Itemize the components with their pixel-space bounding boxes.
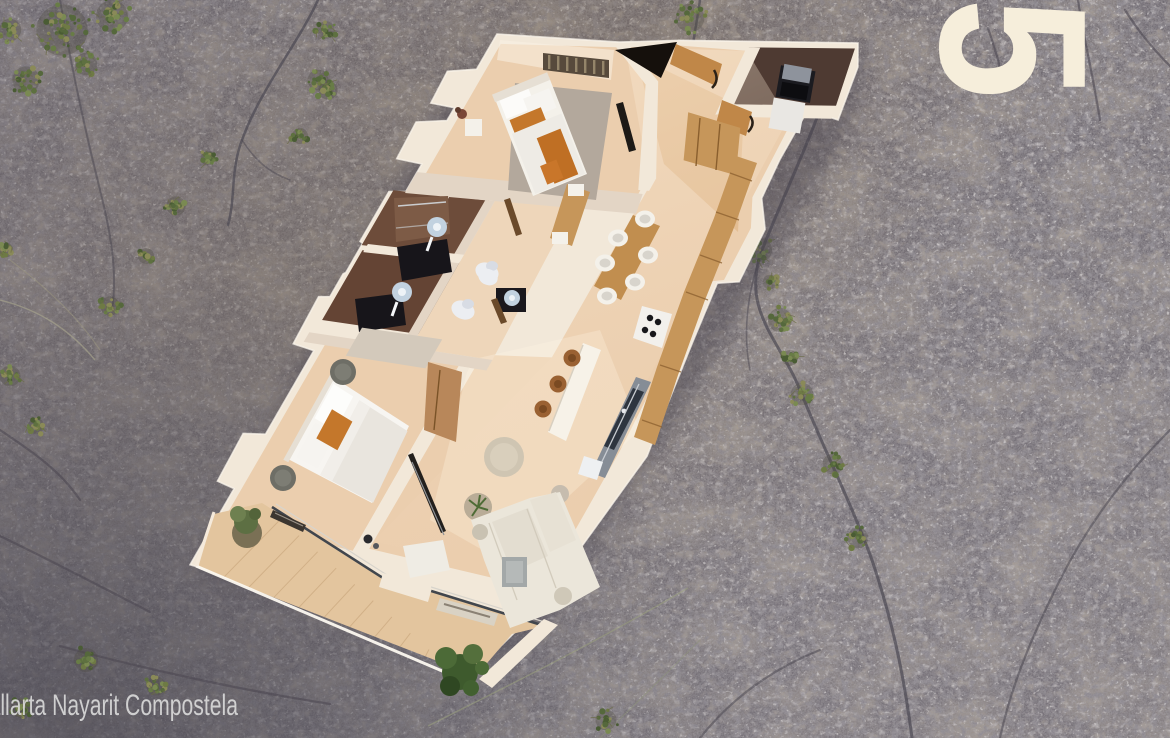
svg-text:Vallarta Nayarit Compostela: Vallarta Nayarit Compostela — [0, 689, 238, 722]
svg-text:5: 5 — [896, 0, 1130, 99]
